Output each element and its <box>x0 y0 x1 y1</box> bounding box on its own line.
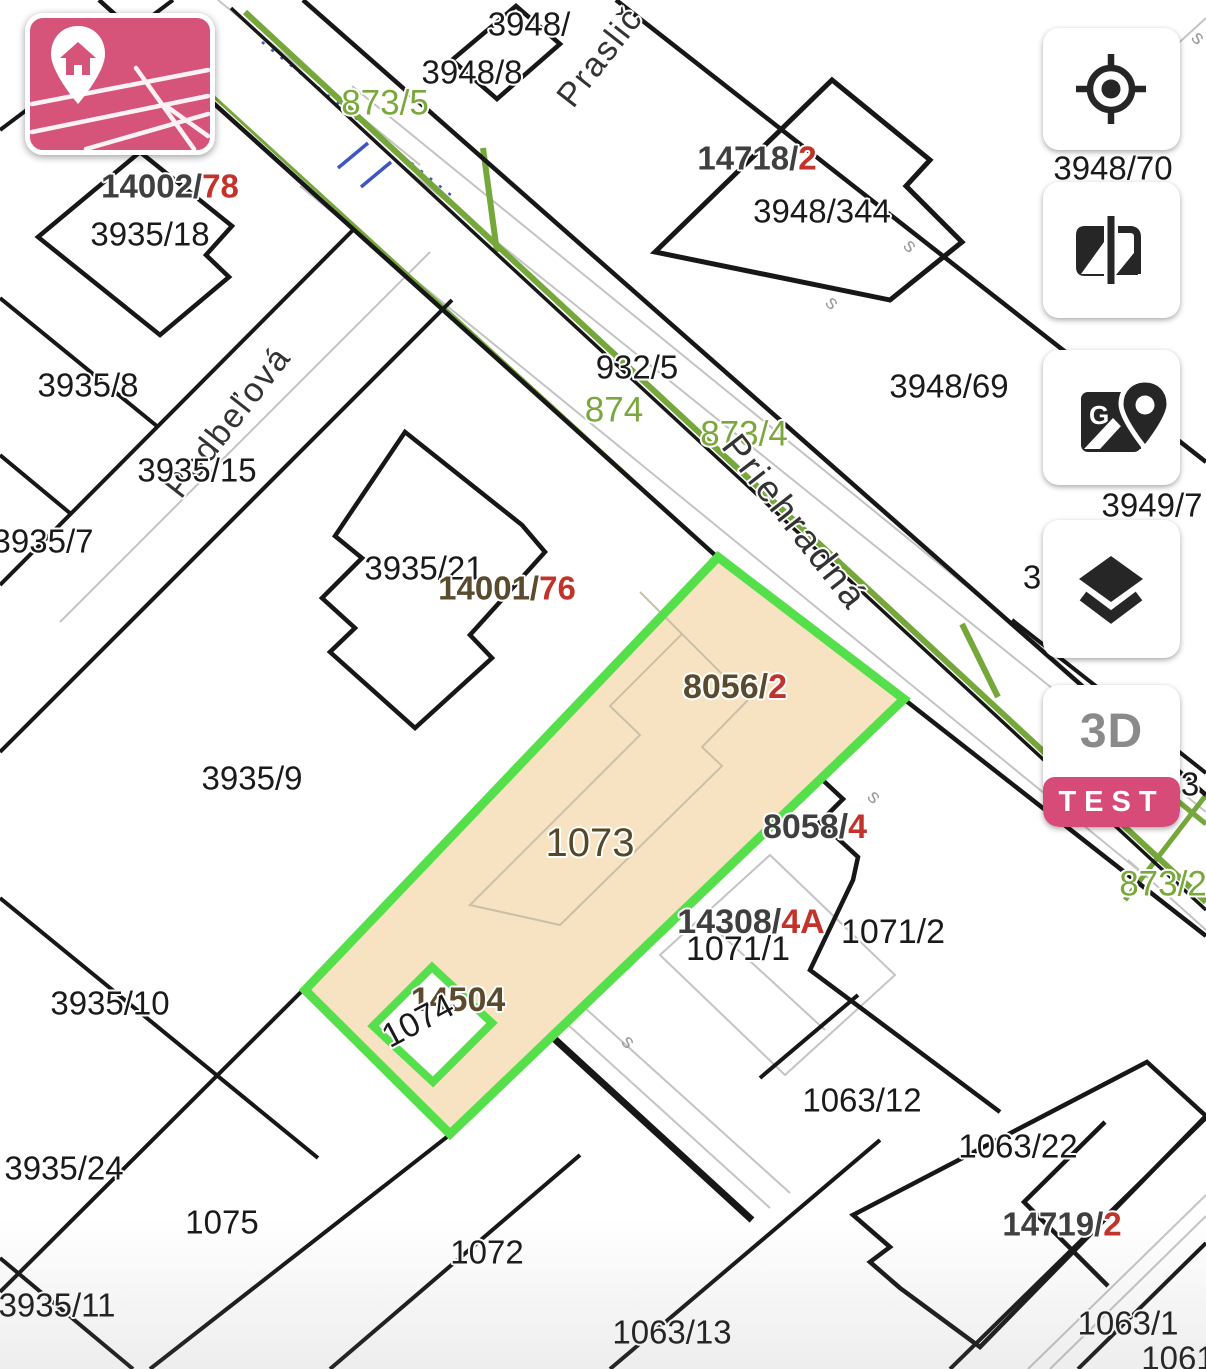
layers-icon <box>1043 520 1180 658</box>
compare-button[interactable] <box>1043 182 1180 318</box>
google-maps-icon: G <box>1043 350 1180 485</box>
locate-button[interactable] <box>1043 28 1180 150</box>
map-canvas[interactable] <box>0 0 1206 1369</box>
view-3d-button[interactable]: 3D TEST <box>1043 685 1180 827</box>
layers-button[interactable] <box>1043 520 1180 658</box>
view-3d-label: 3D <box>1043 685 1180 777</box>
cadastral-map-app: 3948/3948/8873/514002/783935/1814718/239… <box>0 0 1206 1369</box>
test-badge: TEST <box>1043 777 1180 827</box>
google-maps-button[interactable]: G <box>1043 350 1180 485</box>
minimap-button[interactable] <box>25 13 215 155</box>
minimap-thumbnail <box>30 18 210 150</box>
compare-layers-icon <box>1043 182 1180 318</box>
svg-text:G: G <box>1089 400 1109 430</box>
locate-crosshair-icon <box>1043 28 1180 150</box>
